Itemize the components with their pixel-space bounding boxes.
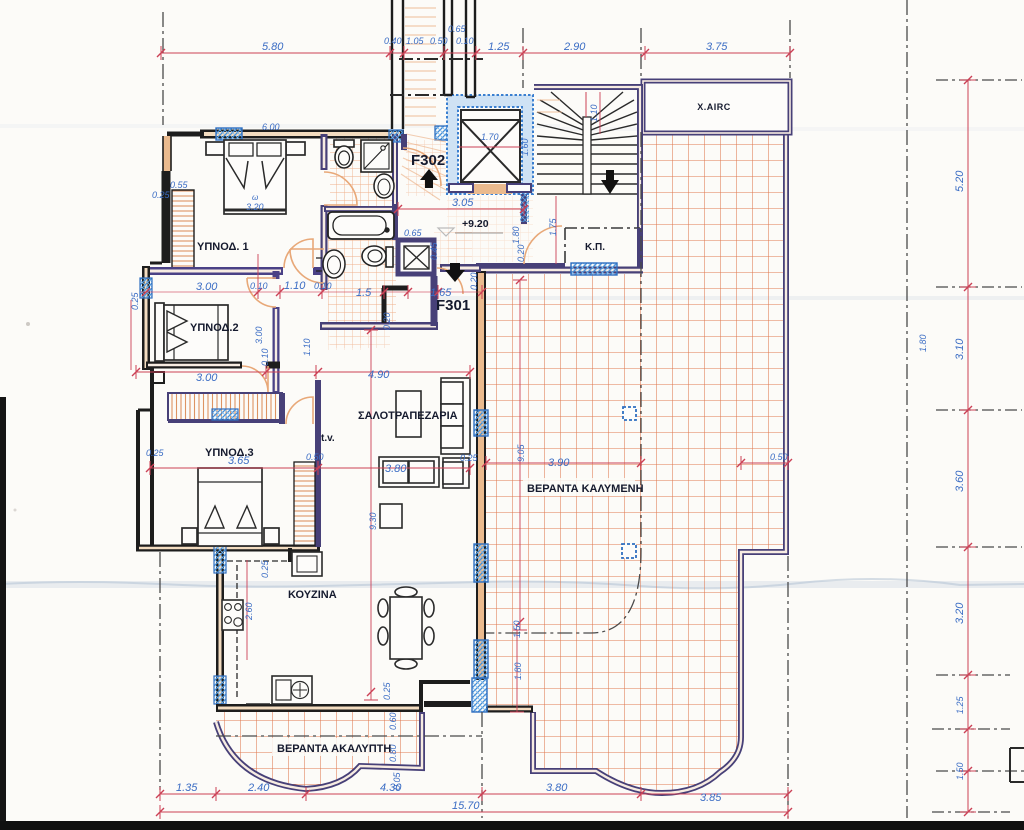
svg-text:0.05: 0.05 — [392, 771, 402, 790]
svg-text:1.50: 1.50 — [512, 620, 522, 638]
svg-text:0.25: 0.25 — [152, 190, 171, 200]
svg-text:3.80: 3.80 — [546, 782, 568, 794]
svg-text:ΒΕΡΑΝΤΑ ΑΚΑΛΥΠΤΗ: ΒΕΡΑΝΤΑ ΑΚΑΛΥΠΤΗ — [277, 743, 391, 755]
svg-text:0.10: 0.10 — [314, 281, 332, 291]
svg-text:3.85: 3.85 — [700, 792, 722, 804]
svg-text:1.10: 1.10 — [284, 280, 306, 292]
svg-text:1.60: 1.60 — [520, 138, 530, 156]
svg-text:Κ.Π.: Κ.Π. — [585, 242, 605, 253]
svg-text:ΒΕΡΑΝΤΑ ΚΑΛΥΜΕΝΗ: ΒΕΡΑΝΤΑ ΚΑΛΥΜΕΝΗ — [527, 483, 644, 495]
svg-text:0.25: 0.25 — [382, 681, 392, 700]
svg-text:0.45: 0.45 — [429, 241, 439, 260]
svg-text:0.55: 0.55 — [170, 180, 189, 190]
svg-text:2.90: 2.90 — [563, 41, 586, 53]
svg-text:0.50: 0.50 — [430, 36, 448, 46]
svg-text:3.90: 3.90 — [548, 457, 570, 469]
svg-text:1.80: 1.80 — [513, 662, 523, 680]
svg-text:9.05: 9.05 — [516, 443, 526, 462]
svg-text:1.35: 1.35 — [176, 782, 198, 794]
svg-text:15.70: 15.70 — [452, 800, 480, 812]
svg-text:ΥΠΝΟΔ. 1: ΥΠΝΟΔ. 1 — [197, 241, 249, 253]
svg-text:3.00: 3.00 — [196, 372, 218, 384]
svg-text:1.75: 1.75 — [548, 217, 558, 236]
svg-text:1.10: 1.10 — [589, 104, 599, 122]
svg-text:3.00: 3.00 — [254, 326, 264, 344]
svg-text:0.40: 0.40 — [384, 36, 402, 46]
svg-text:t.v.: t.v. — [321, 433, 335, 444]
svg-text:1.25: 1.25 — [955, 695, 965, 714]
svg-text:0.25: 0.25 — [130, 291, 140, 310]
svg-text:ω: ω — [252, 193, 258, 202]
svg-text:0.10: 0.10 — [456, 36, 474, 46]
svg-text:0.60: 0.60 — [388, 712, 398, 730]
svg-text:4.90: 4.90 — [368, 369, 390, 381]
svg-text:0.20: 0.20 — [469, 272, 479, 290]
svg-text:3.75: 3.75 — [706, 41, 728, 53]
svg-text:5.80: 5.80 — [262, 41, 284, 53]
svg-text:1.80: 1.80 — [511, 226, 521, 244]
svg-text:2.60: 2.60 — [244, 602, 254, 621]
svg-text:5.20: 5.20 — [954, 170, 966, 192]
svg-text:0.10: 0.10 — [260, 348, 270, 366]
svg-text:1.70: 1.70 — [481, 132, 499, 142]
svg-text:0.25: 0.25 — [146, 448, 165, 458]
svg-text:1.5: 1.5 — [356, 287, 372, 299]
svg-text:F301: F301 — [436, 297, 470, 314]
svg-text:3.05: 3.05 — [452, 197, 474, 209]
svg-text:X.AIRC: X.AIRC — [697, 102, 731, 112]
svg-text:3.20: 3.20 — [246, 202, 264, 212]
svg-text:0.25: 0.25 — [460, 453, 479, 463]
svg-text:0.50: 0.50 — [770, 452, 788, 462]
svg-text:0.10: 0.10 — [250, 281, 268, 291]
svg-text:9.30: 9.30 — [368, 512, 378, 530]
svg-text:F302: F302 — [411, 152, 445, 169]
svg-text:0.20: 0.20 — [382, 312, 392, 330]
svg-text:3.10: 3.10 — [954, 338, 966, 360]
svg-text:1.80: 1.80 — [918, 334, 928, 352]
svg-text:2.40: 2.40 — [247, 782, 270, 794]
svg-text:3.20: 3.20 — [954, 602, 966, 624]
svg-text:0.65: 0.65 — [448, 24, 467, 34]
svg-text:ΣΑΛΟΤΡΑΠΕΖΑΡΙΑ: ΣΑΛΟΤΡΑΠΕΖΑΡΙΑ — [358, 410, 458, 422]
svg-text:0.20: 0.20 — [516, 244, 526, 262]
svg-text:3.80: 3.80 — [385, 463, 407, 475]
svg-text:1.05: 1.05 — [406, 36, 425, 46]
svg-text:ΚΟΥΖΙΝΑ: ΚΟΥΖΙΝΑ — [288, 589, 337, 601]
svg-text:1.10: 1.10 — [302, 338, 312, 356]
svg-text:3.00: 3.00 — [196, 281, 218, 293]
svg-text:ΥΠΝΟΔ.3: ΥΠΝΟΔ.3 — [205, 447, 254, 459]
svg-text:0.25: 0.25 — [260, 559, 270, 578]
svg-text:0.65: 0.65 — [404, 228, 423, 238]
svg-text:1.25: 1.25 — [488, 41, 510, 53]
svg-text:1.50: 1.50 — [955, 762, 965, 780]
svg-text:3.60: 3.60 — [954, 470, 966, 492]
svg-text:6.00: 6.00 — [262, 122, 280, 132]
svg-text:0.50: 0.50 — [306, 452, 324, 462]
svg-text:+9.20: +9.20 — [462, 218, 489, 230]
svg-text:ΥΠΝΟΔ.2: ΥΠΝΟΔ.2 — [190, 322, 239, 334]
